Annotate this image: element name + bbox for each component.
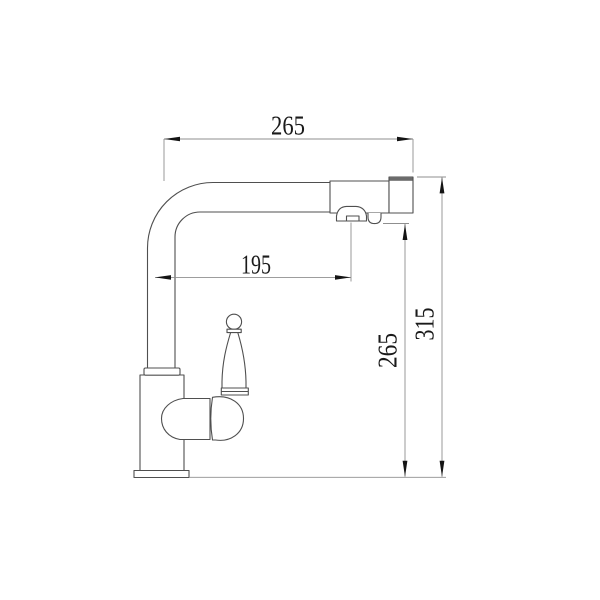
handle-ball xyxy=(226,314,241,329)
dim-overall-height: 315 xyxy=(410,177,447,477)
dim-label-outlet-height: 265 xyxy=(373,333,403,368)
handle-lever xyxy=(222,333,246,388)
base-flange xyxy=(134,471,189,478)
dim-label-overall-height: 315 xyxy=(410,308,440,341)
lever-cap xyxy=(211,397,244,441)
body-collar xyxy=(144,368,180,375)
arrowhead-left xyxy=(155,275,171,280)
dim-label-spout-reach: 195 xyxy=(241,250,271,280)
technical-drawing-page: 265 195 265 315 xyxy=(0,0,600,600)
dim-top-width: 265 xyxy=(164,111,413,182)
faucet-outline xyxy=(134,177,413,478)
spout-tube-inner xyxy=(175,212,330,369)
lever-pod xyxy=(162,399,211,440)
dim-spout-reach: 195 xyxy=(155,223,351,282)
spout-end-cap xyxy=(389,177,413,213)
outlet-spigot xyxy=(368,213,381,224)
arrowhead-down xyxy=(403,461,408,477)
arrowhead-right xyxy=(397,137,413,142)
arrowhead-up xyxy=(403,224,408,240)
arrowhead-down xyxy=(440,461,445,477)
faucet-drawing-svg: 265 195 265 315 xyxy=(0,0,600,600)
aerator-notch xyxy=(347,216,360,221)
arrowhead-right xyxy=(335,275,351,280)
dim-outlet-height: 265 xyxy=(373,224,410,477)
spout-cap-band xyxy=(390,178,413,181)
arrowhead-left xyxy=(164,137,180,142)
arrowhead-up xyxy=(440,177,445,193)
dim-label-top-width: 265 xyxy=(271,111,305,141)
